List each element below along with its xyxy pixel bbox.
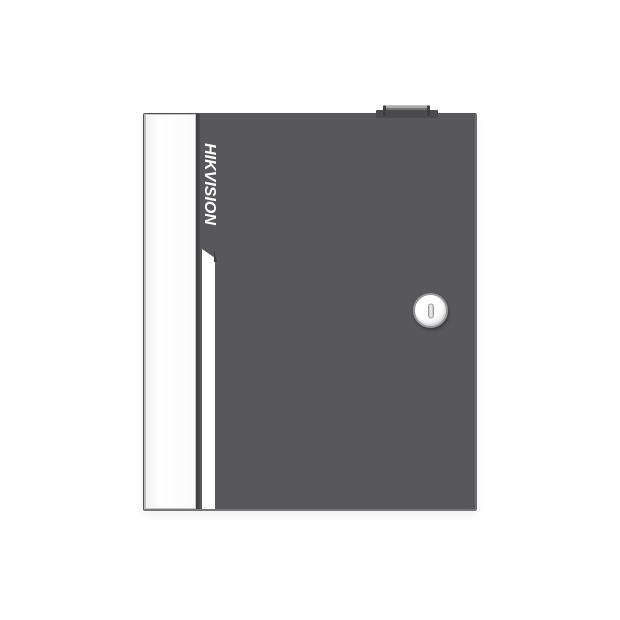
accent-stripe [202, 249, 215, 509]
product-photo: HIKVISION [0, 0, 620, 620]
brand-logo-text: HIKVISION [200, 143, 218, 225]
tamper-bump [383, 105, 430, 116]
door-edge-panel [144, 114, 196, 509]
key-lock [413, 293, 448, 328]
enclosure-body: HIKVISION [143, 113, 477, 511]
accent-stripe-shadow [214, 250, 217, 262]
keyhole-icon [428, 303, 434, 318]
brand-logo: HIKVISION [199, 136, 219, 232]
